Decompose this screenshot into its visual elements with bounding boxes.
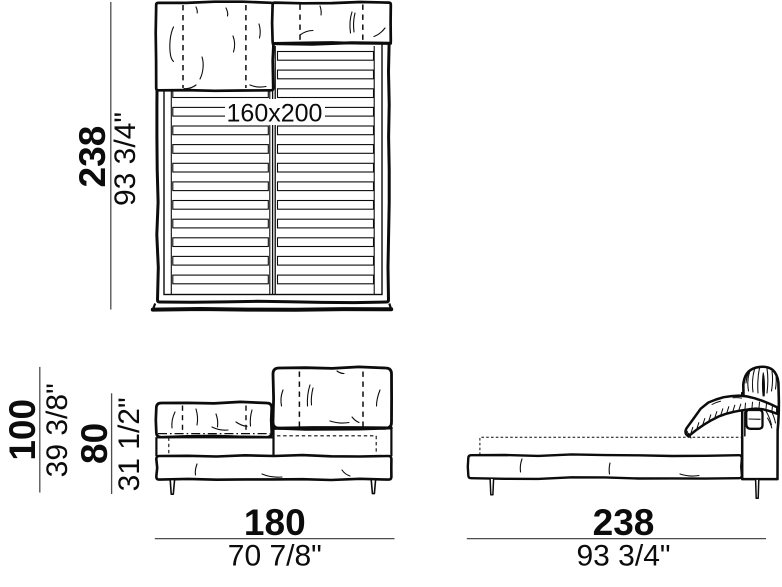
svg-text:180: 180 xyxy=(244,502,306,543)
svg-text:80: 80 xyxy=(74,423,115,464)
svg-text:238: 238 xyxy=(593,502,655,543)
svg-text:39 3/8": 39 3/8" xyxy=(41,383,74,477)
svg-text:100: 100 xyxy=(2,399,43,461)
svg-text:93 3/4": 93 3/4" xyxy=(109,112,142,206)
svg-text:31 1/2": 31 1/2" xyxy=(113,397,146,491)
svg-text:238: 238 xyxy=(72,126,113,188)
svg-text:93 3/4": 93 3/4" xyxy=(576,540,670,573)
svg-text:160x200: 160x200 xyxy=(227,100,323,128)
svg-text:70 7/8": 70 7/8" xyxy=(228,540,322,573)
